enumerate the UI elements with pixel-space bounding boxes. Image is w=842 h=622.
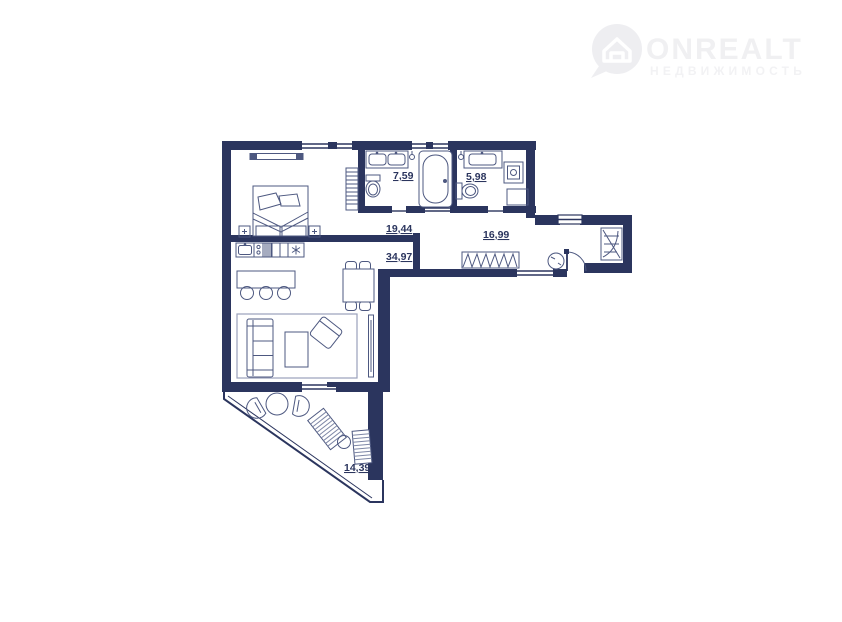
toilet-guest <box>456 183 478 199</box>
shower-head-icon-2 <box>459 151 464 160</box>
kitchen-tall-unit <box>263 243 272 257</box>
label-hallway: 16,99 <box>483 229 509 241</box>
terrace-chair-left <box>243 397 267 422</box>
label-bathroom-guest: 5,98 <box>466 171 487 183</box>
bed <box>253 186 308 236</box>
washing-machine <box>504 162 523 183</box>
sunbed-1 <box>308 408 347 449</box>
label-bedroom: 19,44 <box>386 223 412 235</box>
hall-thin-wall <box>517 271 553 275</box>
kitchen-island <box>237 271 295 288</box>
onrealt-logo: ONREALT НЕДВИЖИМОСТЬ <box>591 24 806 78</box>
double-sink <box>366 151 408 168</box>
kitchen-sink-unit <box>236 243 254 257</box>
map-pin-house-icon <box>591 24 642 78</box>
terrace-furniture <box>243 393 372 464</box>
radiator <box>250 154 303 160</box>
sunbed-2 <box>352 430 372 464</box>
hall-wardrobe <box>462 252 519 268</box>
armchair <box>309 316 343 350</box>
kitchen-living-furniture <box>236 243 374 378</box>
logo-subtitle-text: НЕДВИЖИМОСТЬ <box>650 64 806 78</box>
label-terrace: 14,39 <box>344 462 370 474</box>
floor-plan-svg: ONREALT НЕДВИЖИМОСТЬ <box>0 0 842 622</box>
dining-table <box>343 269 374 302</box>
sink-guest <box>464 151 502 168</box>
terrace-round-table <box>266 393 288 415</box>
thin-wall-under-bathtub <box>425 208 453 211</box>
tv-unit <box>369 315 374 377</box>
bathroom-cabinet <box>507 189 528 205</box>
sofa <box>247 319 273 377</box>
entrance-niche <box>558 215 582 224</box>
label-living-kitchen: 34,97 <box>386 251 412 263</box>
dishwasher <box>288 243 304 257</box>
floor-plan-page: ONREALT НЕДВИЖИМОСТЬ <box>0 0 842 622</box>
balcony-door <box>302 382 336 389</box>
bedroom-furniture <box>239 154 358 238</box>
bathtub <box>419 151 452 207</box>
pouf <box>548 253 564 269</box>
terrace-chair-right <box>292 395 311 418</box>
entrance-wardrobe <box>601 228 622 260</box>
coffee-table <box>285 332 308 367</box>
wardrobe <box>346 168 358 210</box>
logo-brand-text: ONREALT <box>646 33 803 66</box>
label-bathroom-main: 7,59 <box>393 170 414 182</box>
toilet-main <box>366 175 380 197</box>
bathroom-window <box>412 142 448 149</box>
entrance-door <box>564 249 586 271</box>
shower-head-icon <box>410 151 415 160</box>
hob <box>254 243 263 257</box>
bedroom-window <box>302 142 352 149</box>
kitchen-cabinet <box>272 243 288 257</box>
dining-set <box>343 262 374 311</box>
